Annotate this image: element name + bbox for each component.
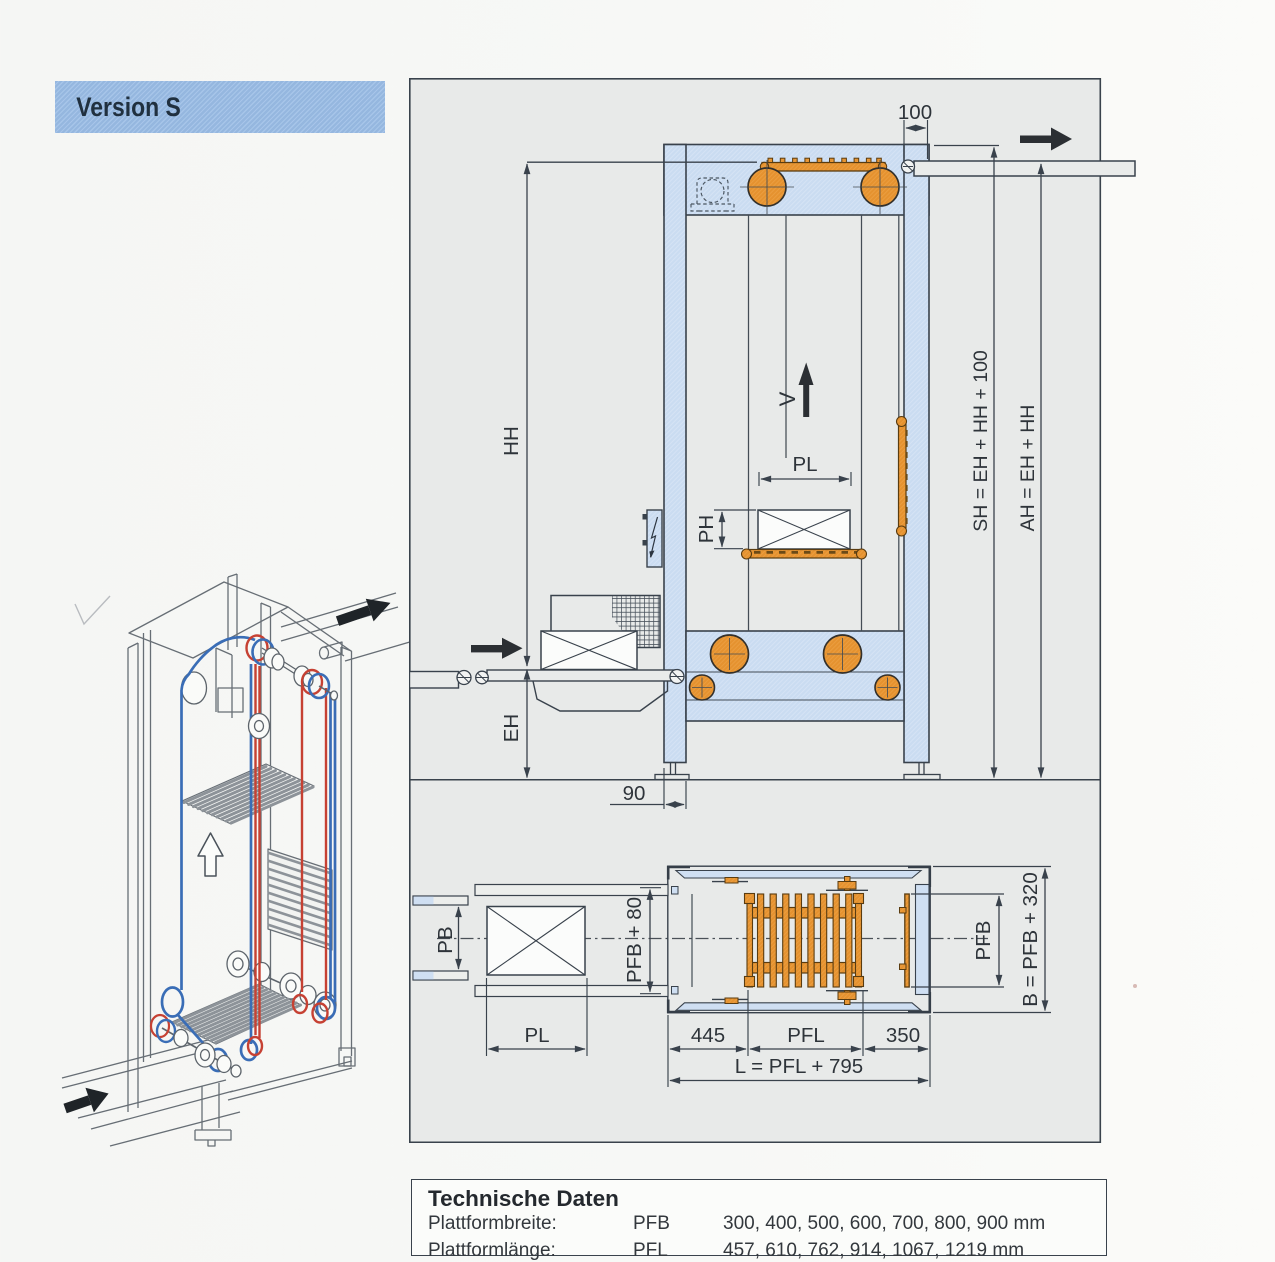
svg-text:445: 445 — [691, 1024, 725, 1047]
svg-text:SH = EH + HH + 100: SH = EH + HH + 100 — [970, 350, 992, 532]
svg-text:PB: PB — [434, 926, 457, 953]
svg-text:100: 100 — [898, 101, 932, 124]
svg-text:350: 350 — [886, 1024, 920, 1047]
svg-text:90: 90 — [623, 782, 646, 805]
svg-text:B = PFB + 320: B = PFB + 320 — [1019, 872, 1042, 1006]
svg-text:L = PFL + 795: L = PFL + 795 — [735, 1055, 863, 1078]
svg-text:HH: HH — [500, 426, 523, 456]
svg-text:PFL: PFL — [787, 1024, 825, 1047]
svg-text:AH = EH + HH: AH = EH + HH — [1017, 405, 1039, 532]
svg-text:PL: PL — [524, 1024, 549, 1047]
svg-text:PH: PH — [695, 515, 718, 543]
svg-text:PFB + 80: PFB + 80 — [623, 897, 646, 983]
svg-text:PL: PL — [792, 453, 817, 476]
svg-text:PFB: PFB — [972, 921, 995, 961]
svg-text:V: V — [775, 391, 800, 406]
svg-text:EH: EH — [500, 714, 523, 742]
